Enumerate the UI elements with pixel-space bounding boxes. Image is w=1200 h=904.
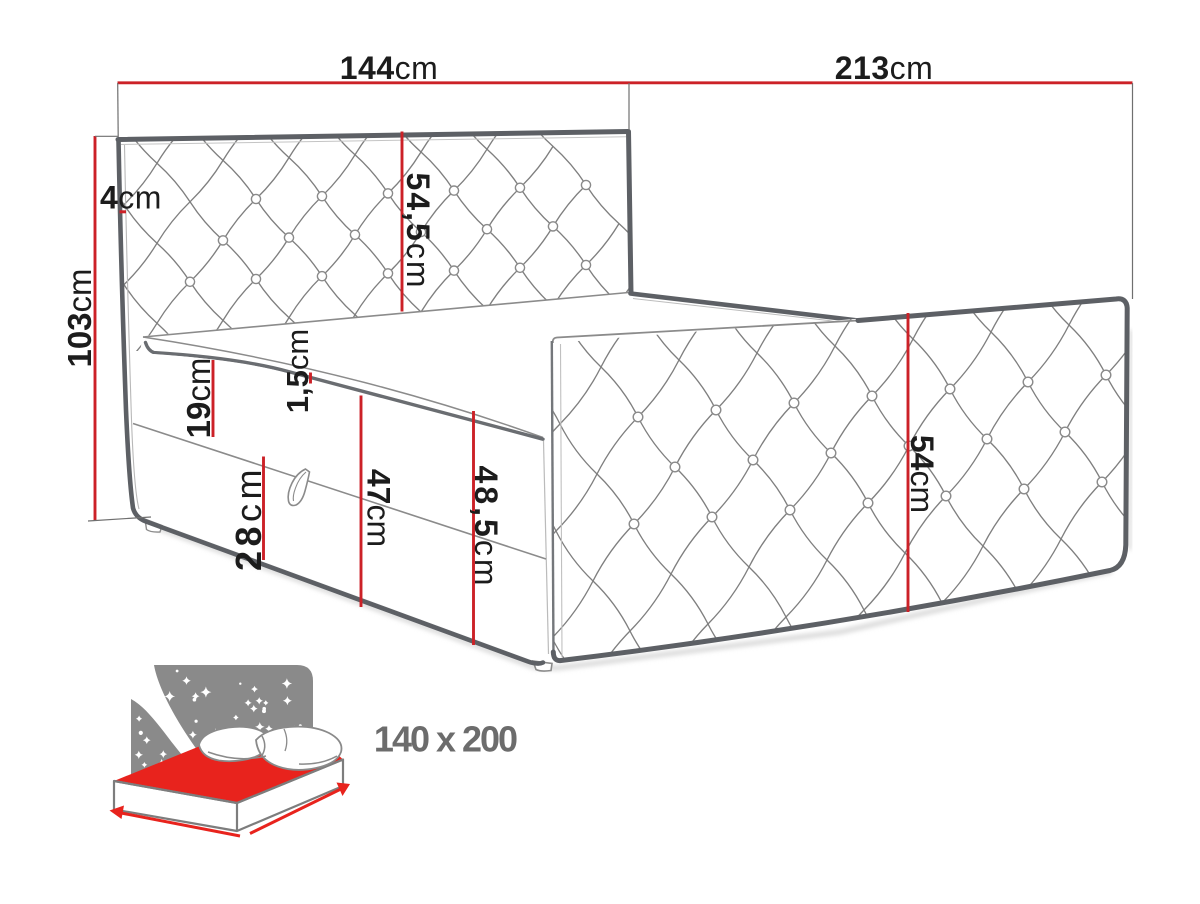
svg-text:103cm: 103cm [61, 268, 98, 367]
svg-text:28cm: 28cm [228, 465, 269, 571]
svg-text:213cm: 213cm [835, 50, 934, 86]
svg-text:54,5cm: 54,5cm [400, 173, 436, 290]
svg-text:47cm: 47cm [361, 469, 397, 547]
svg-text:48,5cm: 48,5cm [468, 466, 504, 589]
svg-text:19cm: 19cm [180, 358, 217, 439]
svg-text:1,5cm: 1,5cm [280, 329, 315, 413]
svg-text:140 x 200: 140 x 200 [374, 719, 517, 760]
svg-text:4cm: 4cm [100, 180, 162, 216]
svg-text:54cm: 54cm [904, 435, 940, 513]
svg-text:144cm: 144cm [340, 50, 439, 86]
